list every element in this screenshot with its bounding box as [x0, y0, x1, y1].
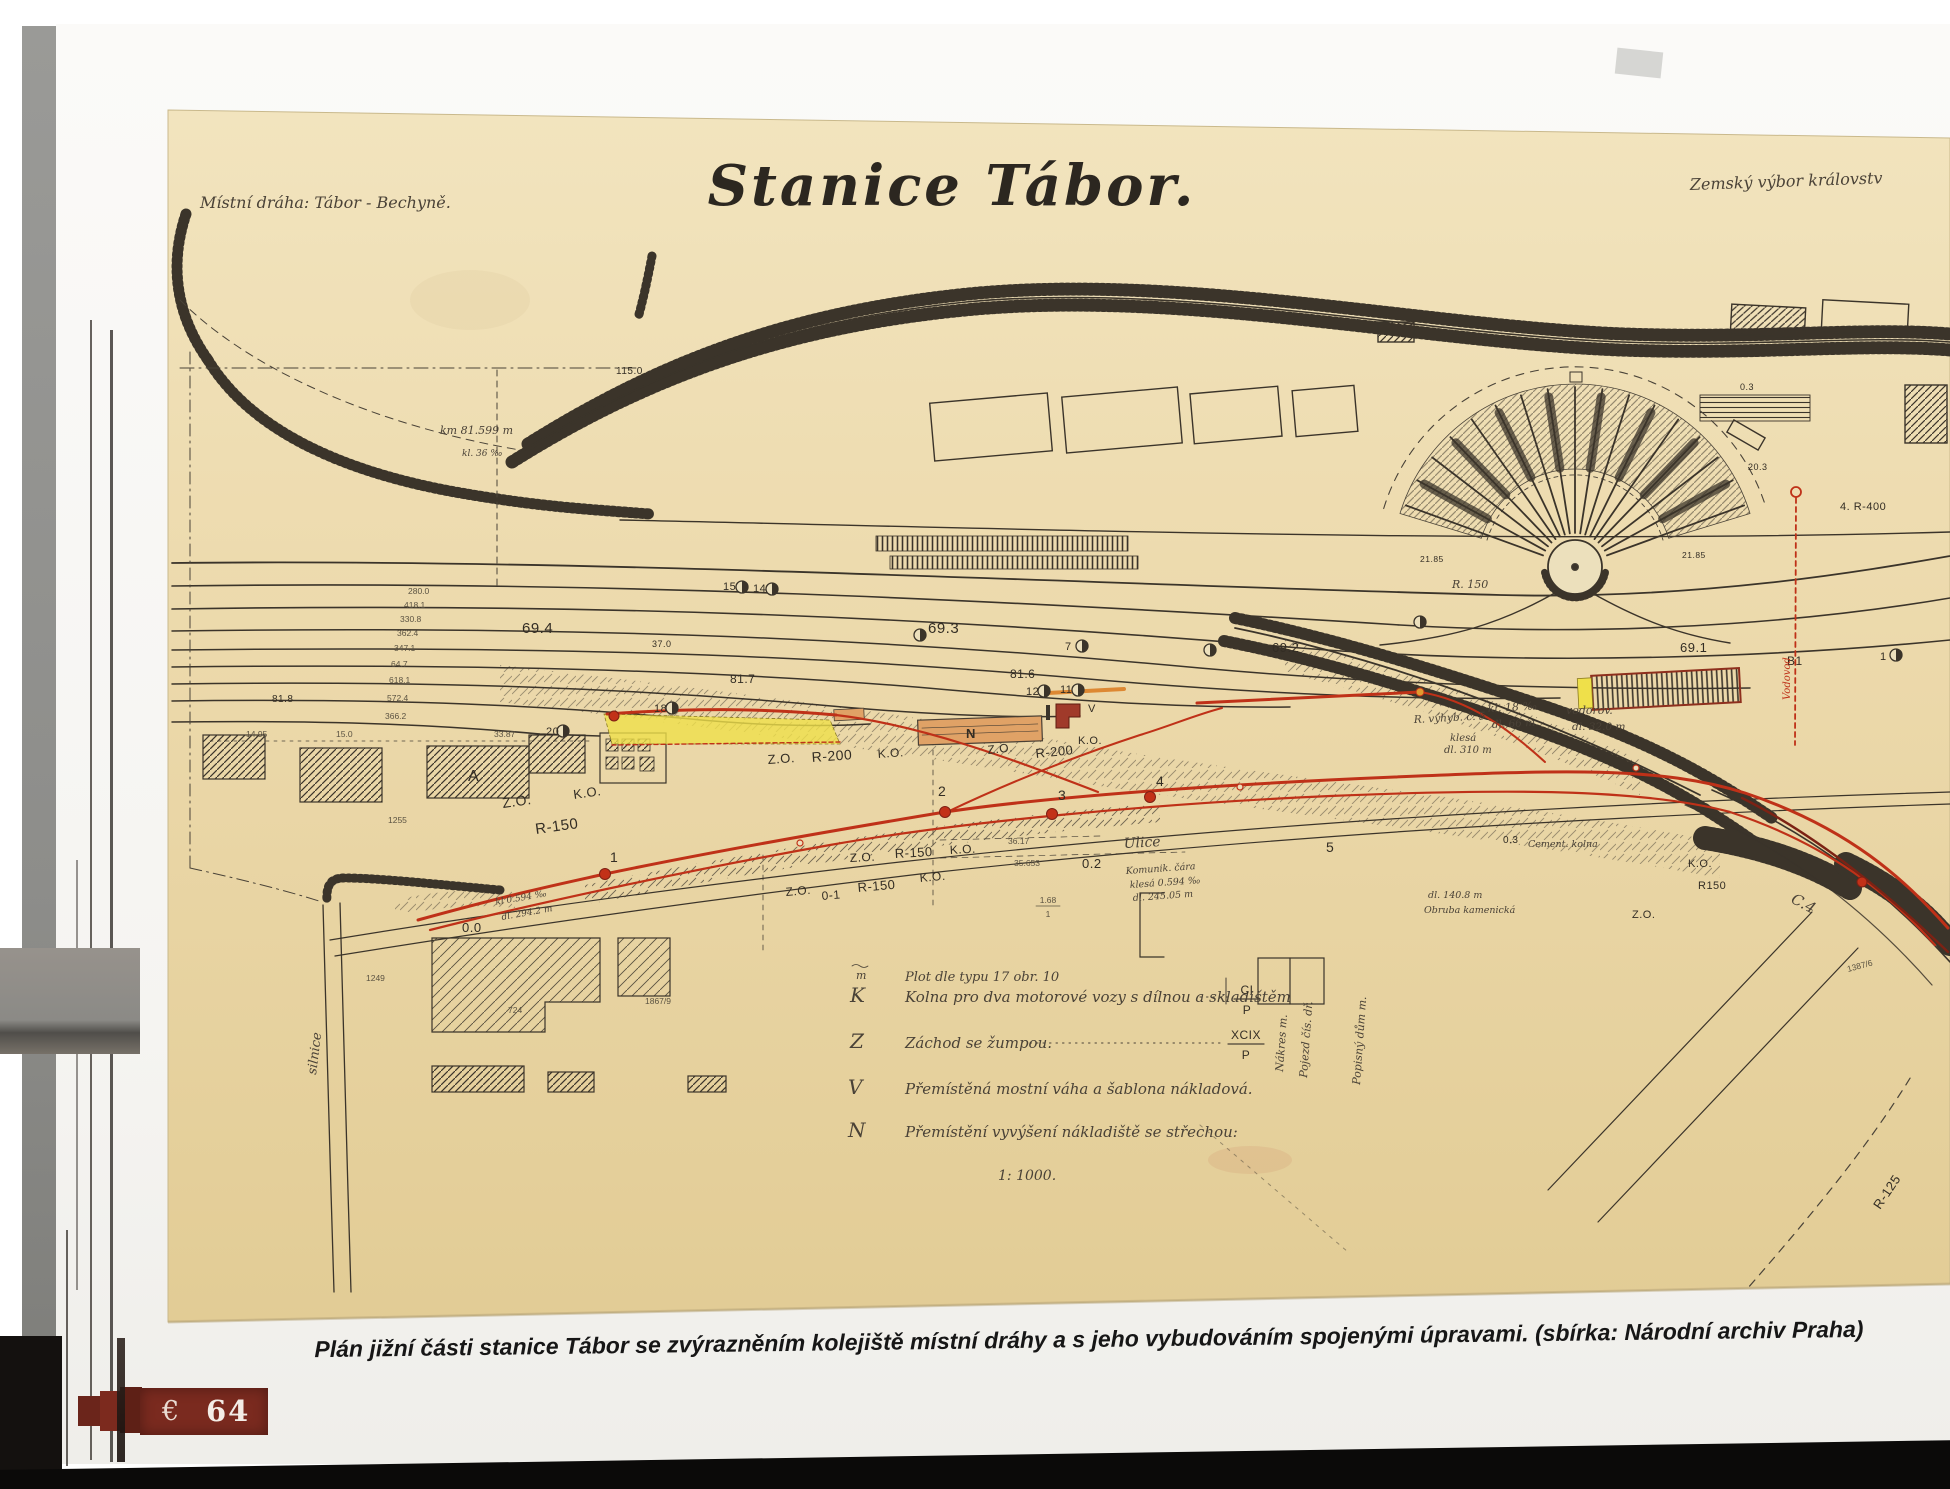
note: dl. 310 m [1444, 745, 1492, 756]
note-water-line: Vodovod [1782, 657, 1793, 700]
page-number-banner: € 64 [140, 1388, 268, 1435]
street-name: Ulice [1123, 834, 1161, 852]
note: Obruba kamenická [1424, 905, 1516, 916]
legend-k-text: Kolna pro dva motorové vozy s dílnou a s… [904, 988, 1291, 1006]
geometry-label: R-200 [811, 746, 853, 765]
point-number: 1 [610, 849, 618, 865]
dimension-label: 21.85 [1682, 550, 1706, 560]
geometry-label: K.O. [1688, 858, 1712, 870]
gradient-fraction-bottom: 1 [1046, 909, 1051, 919]
parcel: 1255 [388, 815, 407, 825]
geometry-label: 0.2 [1082, 856, 1102, 871]
geometry-label: Z.O. [785, 883, 811, 899]
geometry-label: Z.O. [849, 850, 875, 865]
gradient-fraction-top: 1.68 [1040, 895, 1057, 905]
parcel: 1867/9 [645, 996, 671, 1006]
geometry-label: Z.O. [767, 750, 795, 767]
turntable-radius-label: R. 150 [1451, 578, 1488, 591]
parcel: 724 [508, 1005, 522, 1015]
legend-fence-text: Plot dle typu 17 obr. 10 [904, 970, 1059, 985]
legend-z-ref: XCIX [1231, 1028, 1261, 1042]
dimension-label: 20.3 [1748, 462, 1768, 472]
note: dl. 66 m [1492, 717, 1536, 731]
chainage: 330.8 [400, 614, 422, 624]
chainage: 347.1 [394, 643, 416, 653]
dim: 15.0 [336, 729, 353, 739]
paper-stain [410, 270, 530, 330]
chainage: 618.1 [389, 675, 411, 685]
dim: 35.653 [1014, 858, 1040, 868]
station-plan-scan: Stanice Tábor. Místní dráha: Tábor - Bec… [0, 0, 1950, 1489]
geometry-label: R-150 [894, 844, 933, 861]
geometry-label: Z.O. [1632, 909, 1655, 921]
dimension-label: 21.85 [1420, 554, 1444, 564]
plan-scale: 1: 1000. [998, 1168, 1056, 1184]
legend-k-letter: K [849, 983, 866, 1007]
chainage: 362.4 [397, 628, 419, 638]
legend-fence-symbol: m [856, 969, 866, 982]
track-label: 69.3 [928, 620, 959, 637]
track-label: 69.1 [1680, 640, 1707, 655]
switch-number: 11 [1060, 684, 1072, 696]
chainage: 64.7 [391, 659, 408, 669]
building-n-label: N [966, 726, 976, 741]
dim: 33.87 [494, 729, 516, 739]
chainage: 418.1 [404, 600, 426, 610]
note: Cement. kolna [1528, 839, 1598, 850]
curve-label: 4. R-400 [1840, 501, 1886, 513]
legend-k-ref: P [1243, 1003, 1252, 1017]
dimension-label: 0.3 [1503, 835, 1518, 846]
point-number: 5 [1326, 839, 1334, 855]
dim: 14.95 [246, 729, 268, 739]
switch-number: 7 [1065, 641, 1072, 653]
note: km 81.599 m [440, 424, 513, 437]
building-v-label: V [1088, 703, 1096, 715]
building-a-label: A [468, 768, 479, 785]
track-label: 37.0 [652, 639, 672, 649]
banner-glyph: € [162, 1396, 179, 1427]
paper-stain [1208, 1146, 1292, 1174]
geometry-label: K.O. [919, 869, 946, 885]
point-number: 3 [1058, 787, 1066, 803]
legend-v-text: Přemístěná mostní váha a šablona náklado… [904, 1080, 1253, 1098]
switch-number: 14 [753, 583, 766, 595]
switch-number: 20 [546, 726, 559, 738]
track-label: 81.8 [272, 694, 293, 705]
scan-black-corner [0, 1336, 62, 1489]
note: dl. 140.8 m [1428, 890, 1482, 901]
note: dl. 32.0 m [1572, 721, 1625, 733]
note: klesá [1450, 733, 1476, 744]
track-label: 69.2 [1272, 640, 1299, 655]
geometry-label: Z.O. [987, 740, 1014, 757]
track-label: 81.7 [730, 672, 755, 686]
chainage: 572.4 [387, 693, 409, 703]
switch-number: 15 [723, 581, 736, 593]
page-number: 64 [206, 1394, 250, 1428]
geometry-label: 0.0 [462, 920, 482, 935]
book-gutter-shadow [117, 1338, 125, 1462]
track-label: 81.6 [1010, 667, 1035, 681]
chainage: 280.0 [408, 586, 430, 596]
point-number: 2 [938, 783, 946, 799]
track-label: 69.4 [522, 620, 553, 637]
switch-number: 12 [1026, 686, 1039, 698]
banner-chip [78, 1396, 100, 1426]
geometry-label: K.O. [1078, 735, 1102, 747]
geometry-label: K.O. [877, 745, 904, 761]
switch-number: 18 [654, 703, 667, 715]
note: kl. 18 ‰ [1487, 699, 1537, 715]
geometry-label: K.O. [949, 842, 976, 857]
legend-n-text: Přemístění vyvýšení nákladiště se střech… [904, 1123, 1238, 1141]
dim: 36.17 [1008, 836, 1030, 846]
geometry-label: R150 [1698, 880, 1726, 892]
loading-dock-n [918, 716, 1043, 745]
legend-k-ref: CI [1241, 983, 1254, 997]
dimension-label: 0.3 [1740, 382, 1754, 392]
legend-n-letter: N [847, 1118, 867, 1142]
note: vodorov. [1566, 704, 1613, 717]
top-left-note: Místní dráha: Tábor - Bechyně. [199, 193, 451, 212]
chainage: 366.2 [385, 711, 407, 721]
parcel: 1249 [366, 973, 385, 983]
plan-title: Stanice Tábor. [708, 153, 1197, 219]
switch-number: 1 [1880, 651, 1887, 663]
geometry-label: 0-1 [821, 887, 841, 903]
legend-v-letter: V [848, 1075, 865, 1099]
legend-z-ref: P [1242, 1048, 1251, 1062]
legend-z-letter: Z [849, 1029, 865, 1053]
note: kl. 36 ‰ [462, 449, 502, 459]
point-number: 4 [1156, 773, 1164, 789]
dimension-label: 115.0 [616, 366, 643, 377]
